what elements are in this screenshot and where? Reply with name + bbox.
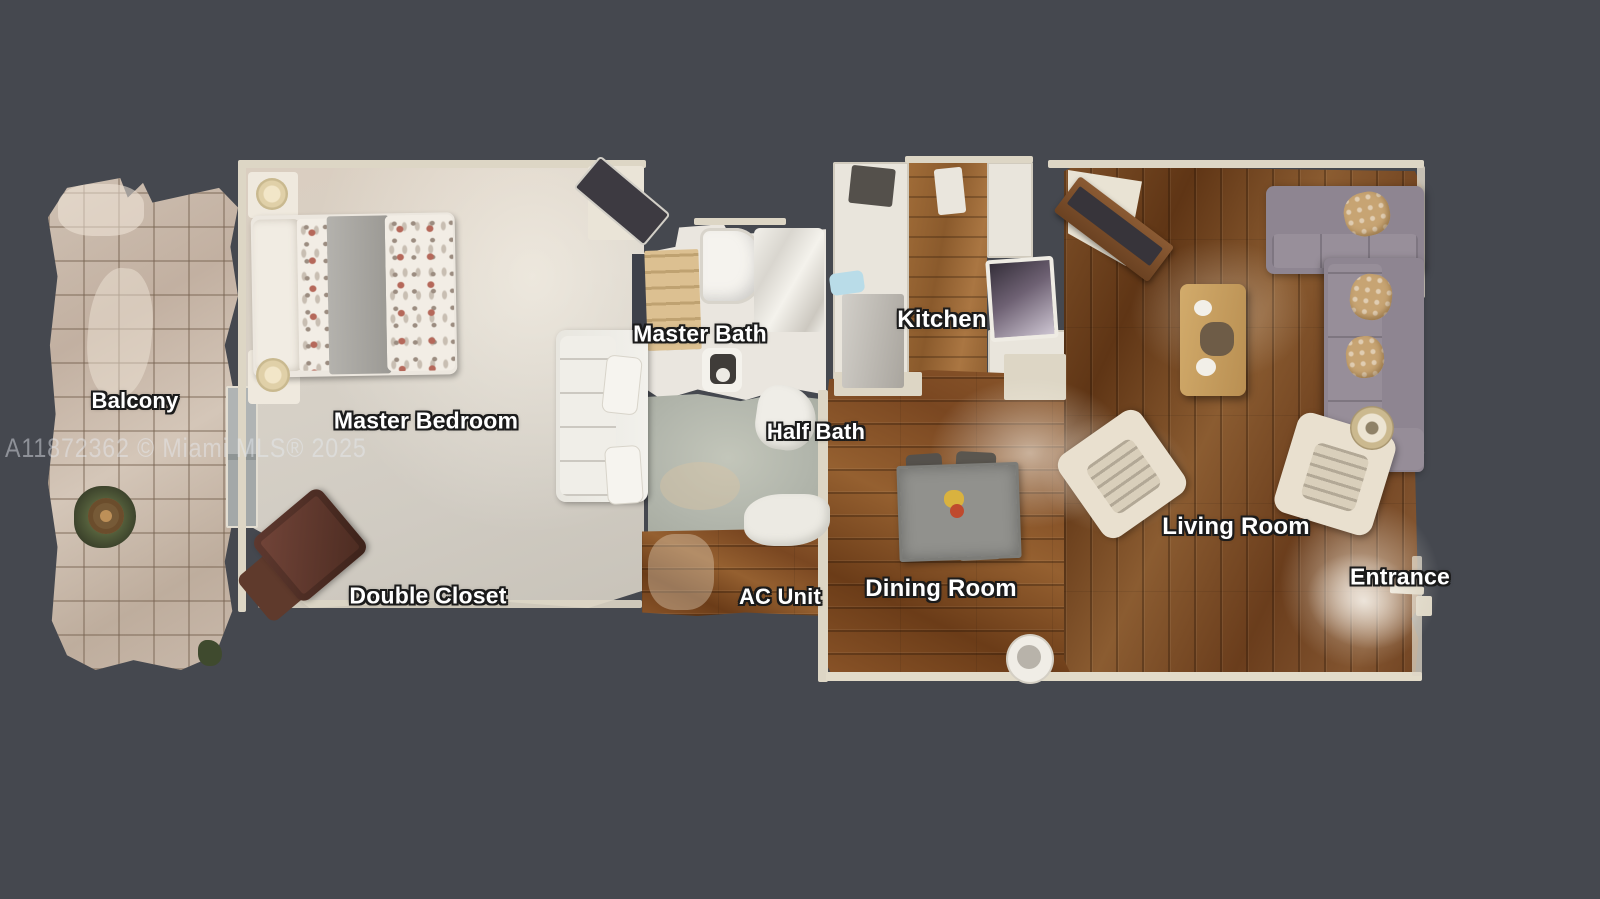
room-label-master-bath: Master Bath (633, 321, 767, 348)
armchair-cushion (1300, 441, 1371, 513)
room-label-dining-room: Dining Room (865, 575, 1017, 603)
utility-floor-patch (660, 462, 740, 510)
bath-wall-top (694, 218, 786, 225)
table-cup (1196, 358, 1216, 376)
bed (251, 212, 458, 378)
plant-pot (88, 498, 124, 534)
refrigerator (848, 165, 896, 207)
room-label-kitchen: Kitchen (897, 306, 986, 334)
room-label-entrance: Entrance (1350, 564, 1450, 591)
bedroom-wall-left (238, 160, 246, 612)
half-bath-sink (744, 494, 830, 546)
balcony-tile-light-patch (58, 184, 144, 236)
kitchen-island (934, 167, 967, 216)
table-lamp (1350, 406, 1394, 450)
table-cup (1194, 300, 1212, 316)
bed-blanket (327, 215, 392, 374)
room-label-balcony: Balcony (92, 388, 179, 414)
armchair-cushion (1084, 437, 1163, 517)
sofa-pillow (604, 445, 644, 505)
table-flowers (950, 504, 964, 518)
nightstand-lamp (256, 178, 288, 210)
dishwasher (842, 294, 904, 388)
living-wall-top (1048, 160, 1424, 168)
balcony-floor (48, 178, 238, 670)
sofa-pillow (601, 354, 643, 415)
kitchen-wall-top (905, 156, 1033, 163)
bed-comforter (385, 214, 456, 371)
wall-fragment (1004, 354, 1066, 400)
stove (985, 256, 1059, 343)
bed-sheets (253, 219, 304, 372)
kitchen-cabinets-right-top (987, 162, 1033, 258)
bottom-wall (826, 672, 1422, 681)
bath-vanity (754, 228, 824, 332)
room-label-living-room: Living Room (1162, 513, 1310, 541)
mls-watermark: A11872362 © Miami MLS® 2025 (5, 433, 367, 464)
hallway-light-patch (648, 534, 714, 610)
nightstand-lamp (256, 358, 290, 392)
toilet-lid (716, 368, 730, 382)
stool-center (1017, 645, 1041, 669)
floorplan-scene: Balcony Master Bedroom Master Bath Kitch… (0, 0, 1600, 899)
room-label-ac-unit: AC Unit (739, 584, 821, 610)
room-label-half-bath: Half Bath (767, 419, 865, 445)
kitchen-sink (829, 270, 866, 297)
room-label-double-closet: Double Closet (349, 583, 506, 610)
table-centerpiece (1200, 322, 1234, 356)
bedroom-wall-top (242, 160, 646, 168)
room-label-master-bedroom: Master Bedroom (334, 408, 518, 435)
balcony-corner-plant (198, 640, 222, 666)
